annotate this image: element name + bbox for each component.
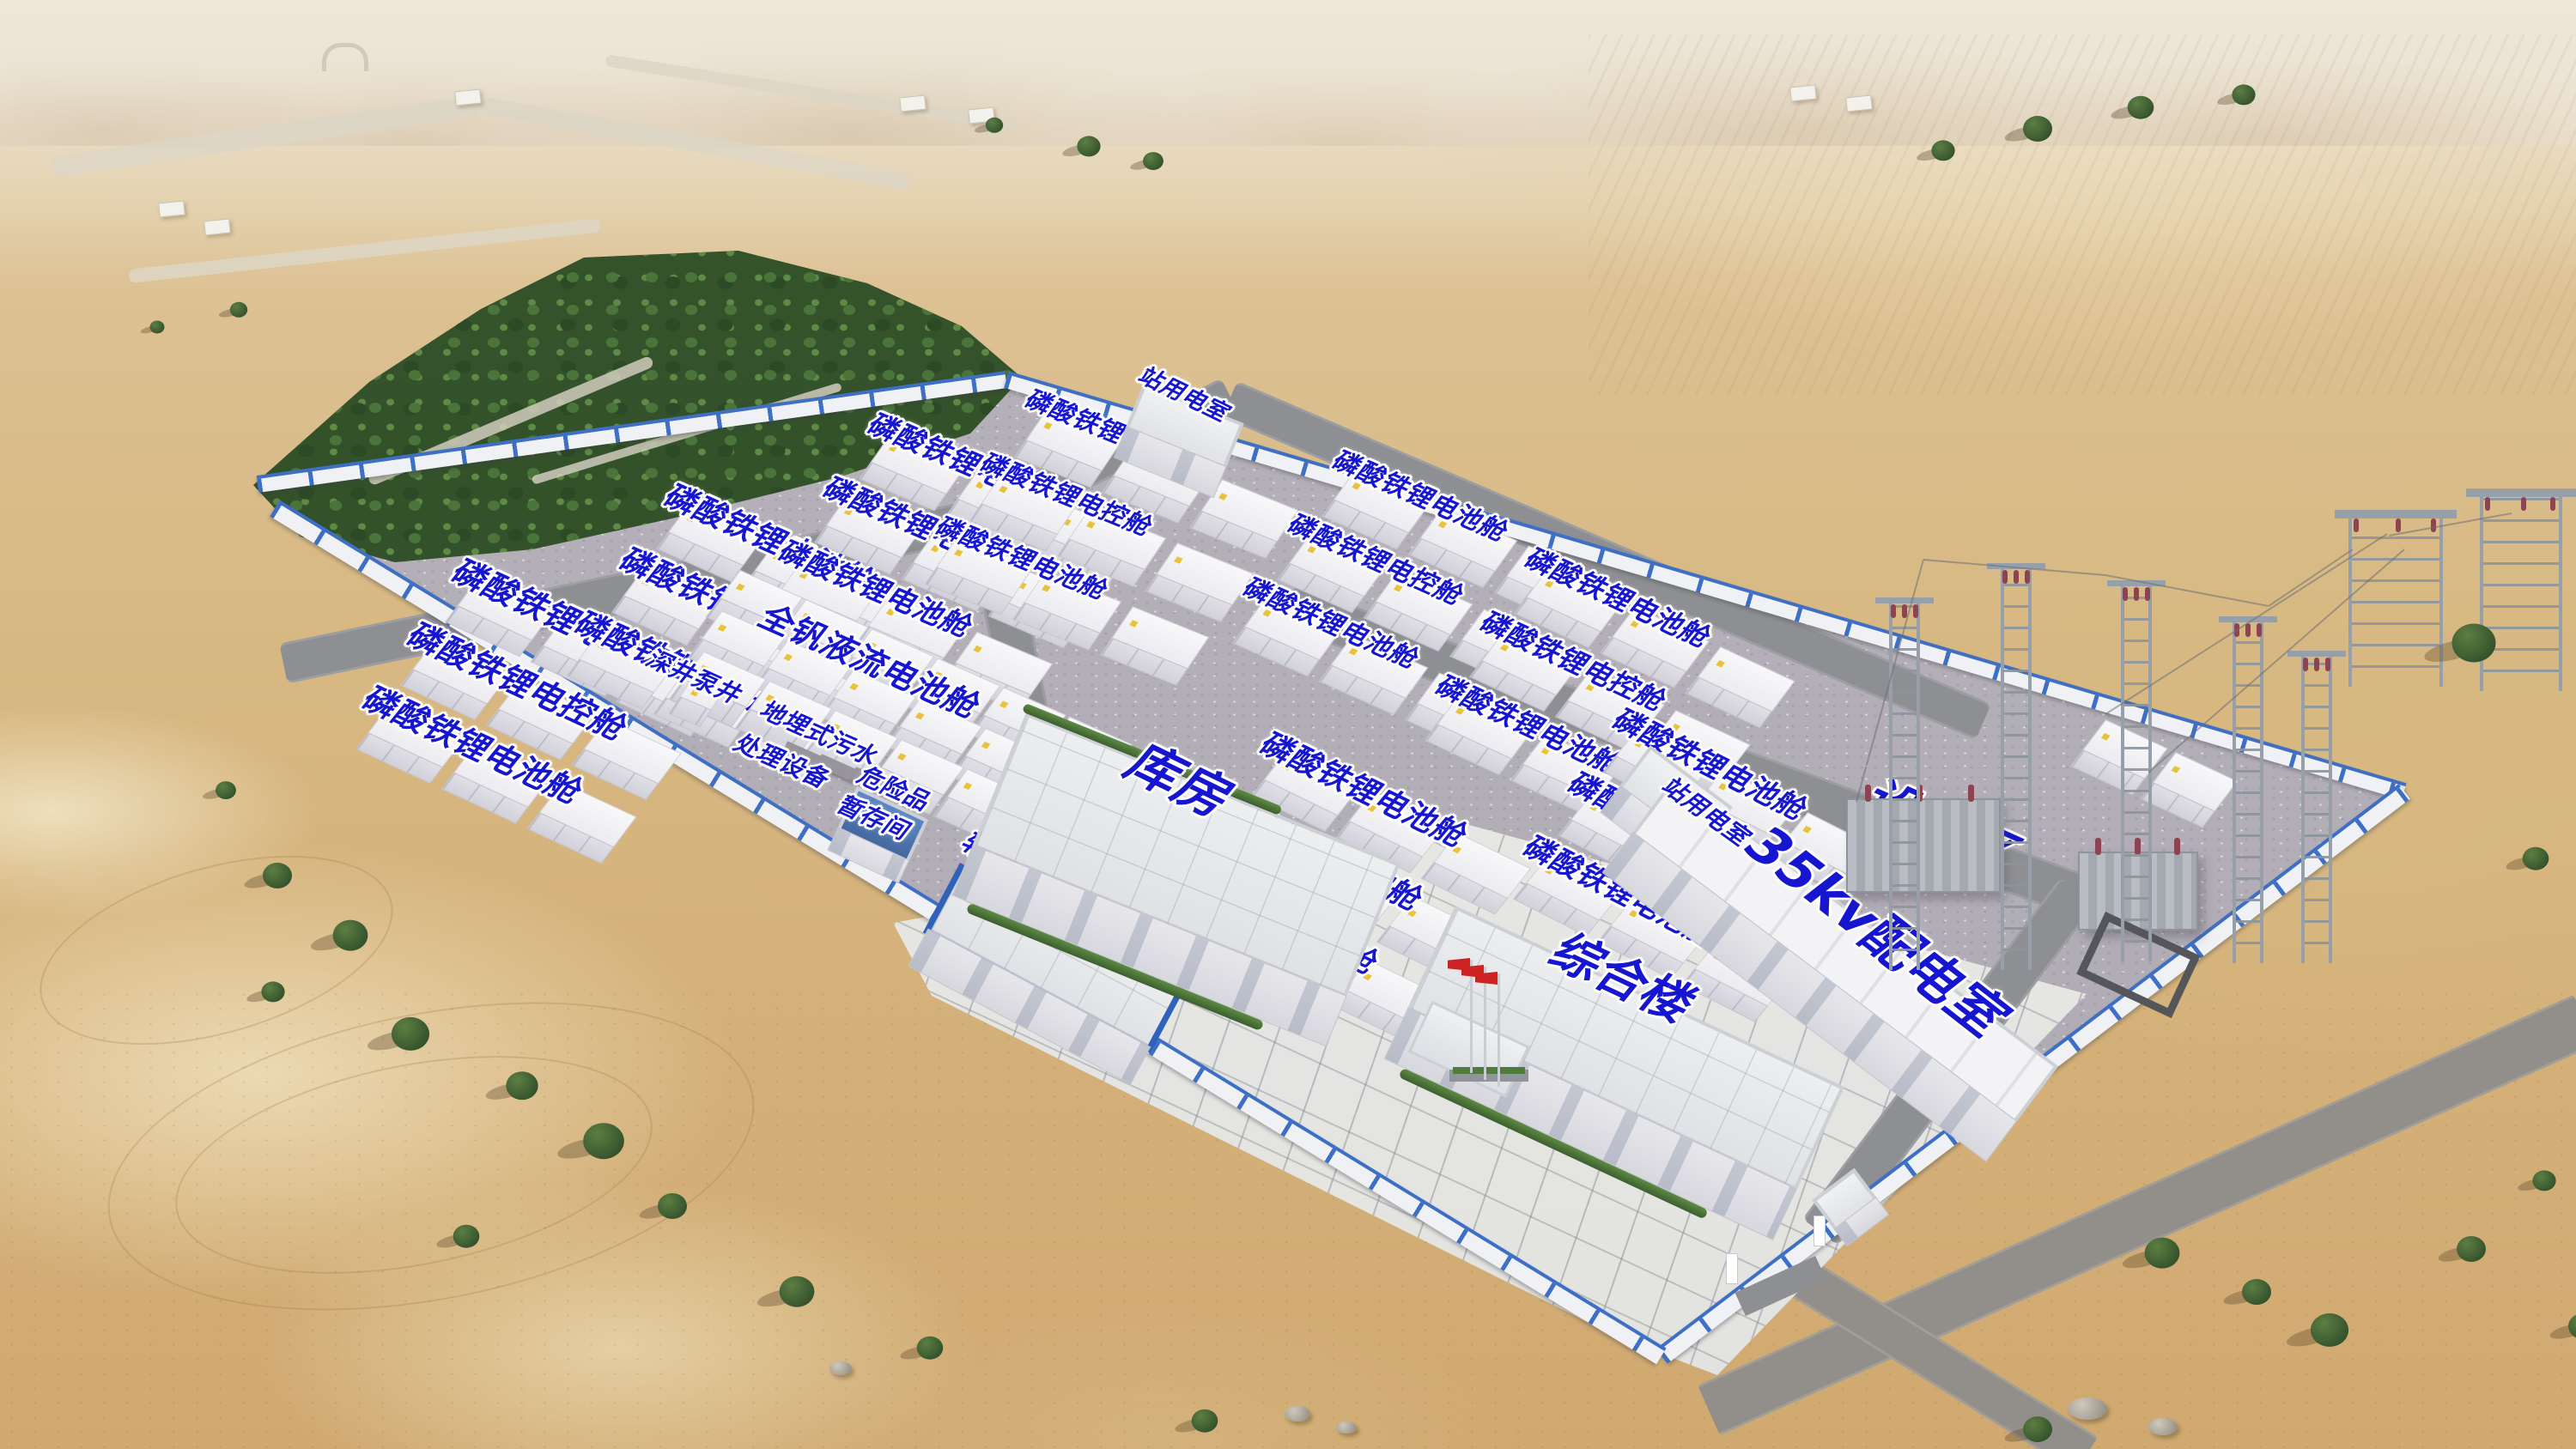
insulator — [2485, 497, 2490, 511]
distant-building — [158, 200, 185, 217]
transformer-bushing — [1968, 785, 1974, 802]
insulator — [2325, 658, 2330, 671]
insulator — [1913, 604, 1918, 618]
transformer-bushing — [2095, 838, 2101, 855]
distant-building — [1789, 84, 1817, 101]
tree-crown — [2023, 1416, 2052, 1442]
desert-rock — [2148, 1418, 2178, 1435]
desert-tree — [1928, 140, 1959, 163]
desert-tree — [773, 1276, 820, 1312]
desert-tree — [2138, 1238, 2185, 1273]
desert-rock — [1336, 1422, 1357, 1434]
insulator — [2303, 658, 2308, 671]
desert-tree — [501, 1071, 544, 1103]
flagpole — [1498, 973, 1500, 1087]
transformer-bushing — [1865, 785, 1871, 802]
desert-tree — [385, 1017, 436, 1055]
tree-crown — [2311, 1313, 2348, 1347]
tree-crown — [2232, 84, 2255, 105]
lattice-mast — [2233, 620, 2263, 963]
desert-tree — [2018, 116, 2057, 145]
tree-crown — [2457, 1236, 2486, 1262]
distant-road — [128, 218, 602, 283]
insulator — [2521, 497, 2526, 511]
desert-tree — [2445, 624, 2504, 668]
scene-layer: 磷酸铁锂电池舱磷酸铁锂电控舱磷酸铁锂电池舱磷酸铁锂电池舱磷酸铁锂电控舱磷酸铁锂电… — [0, 0, 2576, 1449]
distant-road — [479, 96, 912, 191]
tree-crown — [658, 1193, 687, 1219]
insulator — [2123, 587, 2128, 601]
desert-tree — [2228, 84, 2260, 107]
insulator — [1891, 604, 1896, 618]
tree-crown — [1143, 152, 1163, 170]
tree-crown — [230, 302, 247, 318]
desert-tree — [2018, 1416, 2057, 1446]
desert-tree — [2529, 1170, 2561, 1193]
lattice-mast — [2121, 584, 2152, 961]
insulator — [2396, 518, 2401, 532]
desert-tree — [1139, 152, 1167, 173]
tree-crown — [453, 1225, 480, 1248]
distant-building — [899, 94, 927, 112]
gantry-beam — [2335, 510, 2457, 518]
tree-crown — [986, 118, 1003, 133]
building-front-face — [1833, 1197, 1889, 1246]
tree-crown — [2242, 1279, 2271, 1305]
forest-accent-tree — [272, 435, 295, 453]
mast-crossarm — [2287, 651, 2346, 657]
insulator — [2145, 587, 2150, 601]
tree-crown — [1931, 140, 1954, 161]
tree-crown — [2145, 1238, 2180, 1269]
tree-crown — [261, 981, 284, 1002]
distant-building — [204, 218, 231, 235]
distant-road — [605, 54, 1014, 130]
gate-post — [1814, 1216, 1826, 1246]
insulator — [2257, 623, 2262, 637]
insulator — [2314, 658, 2319, 671]
desert-tree — [912, 1337, 947, 1363]
lattice-mast — [2301, 654, 2332, 963]
desert-rock — [829, 1361, 852, 1375]
tree-crown — [583, 1123, 624, 1159]
desert-tree — [258, 863, 297, 892]
tree-crown — [917, 1337, 944, 1360]
desert-tree — [653, 1193, 692, 1222]
tree-crown — [1077, 136, 1100, 156]
desert-tree — [2304, 1313, 2355, 1351]
tree-crown — [263, 863, 292, 888]
desert-tree — [576, 1123, 631, 1164]
tree-crown — [506, 1071, 538, 1100]
insulator — [2550, 497, 2555, 511]
tree-crown — [216, 781, 236, 799]
aerial-site-rendering: 磷酸铁锂电池舱磷酸铁锂电控舱磷酸铁锂电池舱磷酸铁锂电池舱磷酸铁锂电控舱磷酸铁锂电… — [0, 0, 2576, 1449]
mast-crossarm — [1875, 597, 1934, 603]
gantry-beam — [2466, 488, 2576, 497]
insulator — [2025, 570, 2030, 584]
lattice-mast — [2001, 567, 2032, 970]
desert-tree — [2518, 847, 2553, 874]
tree-crown — [2532, 1170, 2555, 1191]
flag-planter-hedge — [1453, 1067, 1525, 1074]
main-transformer — [1846, 798, 2001, 893]
insulator — [2002, 570, 2008, 584]
desert-tree — [148, 321, 167, 336]
transformer-bushing — [2174, 838, 2180, 855]
tree-crown — [1192, 1410, 1218, 1433]
desert-tree — [227, 302, 251, 319]
insulator — [2245, 623, 2251, 637]
distant-arch-structure — [322, 43, 368, 71]
tree-crown — [2523, 847, 2549, 870]
desert-tree — [2563, 1313, 2576, 1343]
gate-post — [1726, 1253, 1738, 1284]
tree-crown — [2452, 624, 2496, 663]
desert-tree — [448, 1225, 483, 1252]
desert-tree — [1073, 136, 1105, 159]
distant-building — [1845, 94, 1873, 112]
desert-rock — [2068, 1397, 2107, 1420]
desert-rock — [1285, 1406, 1310, 1422]
desert-tree — [2451, 1236, 2491, 1265]
distant-road — [50, 94, 482, 178]
desert-tree — [212, 781, 240, 802]
forest-accent-tree — [254, 500, 270, 512]
power-wire — [2268, 549, 2353, 607]
tree-crown — [150, 321, 165, 334]
tree-crown — [333, 920, 368, 951]
desert-tree — [982, 118, 1006, 135]
desert-tree — [258, 981, 289, 1004]
desert-tree — [2123, 96, 2158, 123]
insulator — [2134, 587, 2139, 601]
insulator — [2354, 518, 2359, 532]
distant-building — [454, 88, 482, 106]
tree-crown — [780, 1276, 815, 1307]
insulator — [2014, 570, 2019, 584]
tree-crown — [2128, 96, 2154, 119]
flagpole — [1470, 960, 1473, 1073]
tree-crown — [2023, 116, 2052, 142]
desert-tree — [326, 920, 374, 955]
lattice-mast — [1889, 601, 1920, 970]
flagpole — [1484, 967, 1486, 1080]
desert-tree — [2237, 1279, 2276, 1308]
desert-tree — [1187, 1410, 1222, 1436]
tree-crown — [392, 1017, 429, 1051]
